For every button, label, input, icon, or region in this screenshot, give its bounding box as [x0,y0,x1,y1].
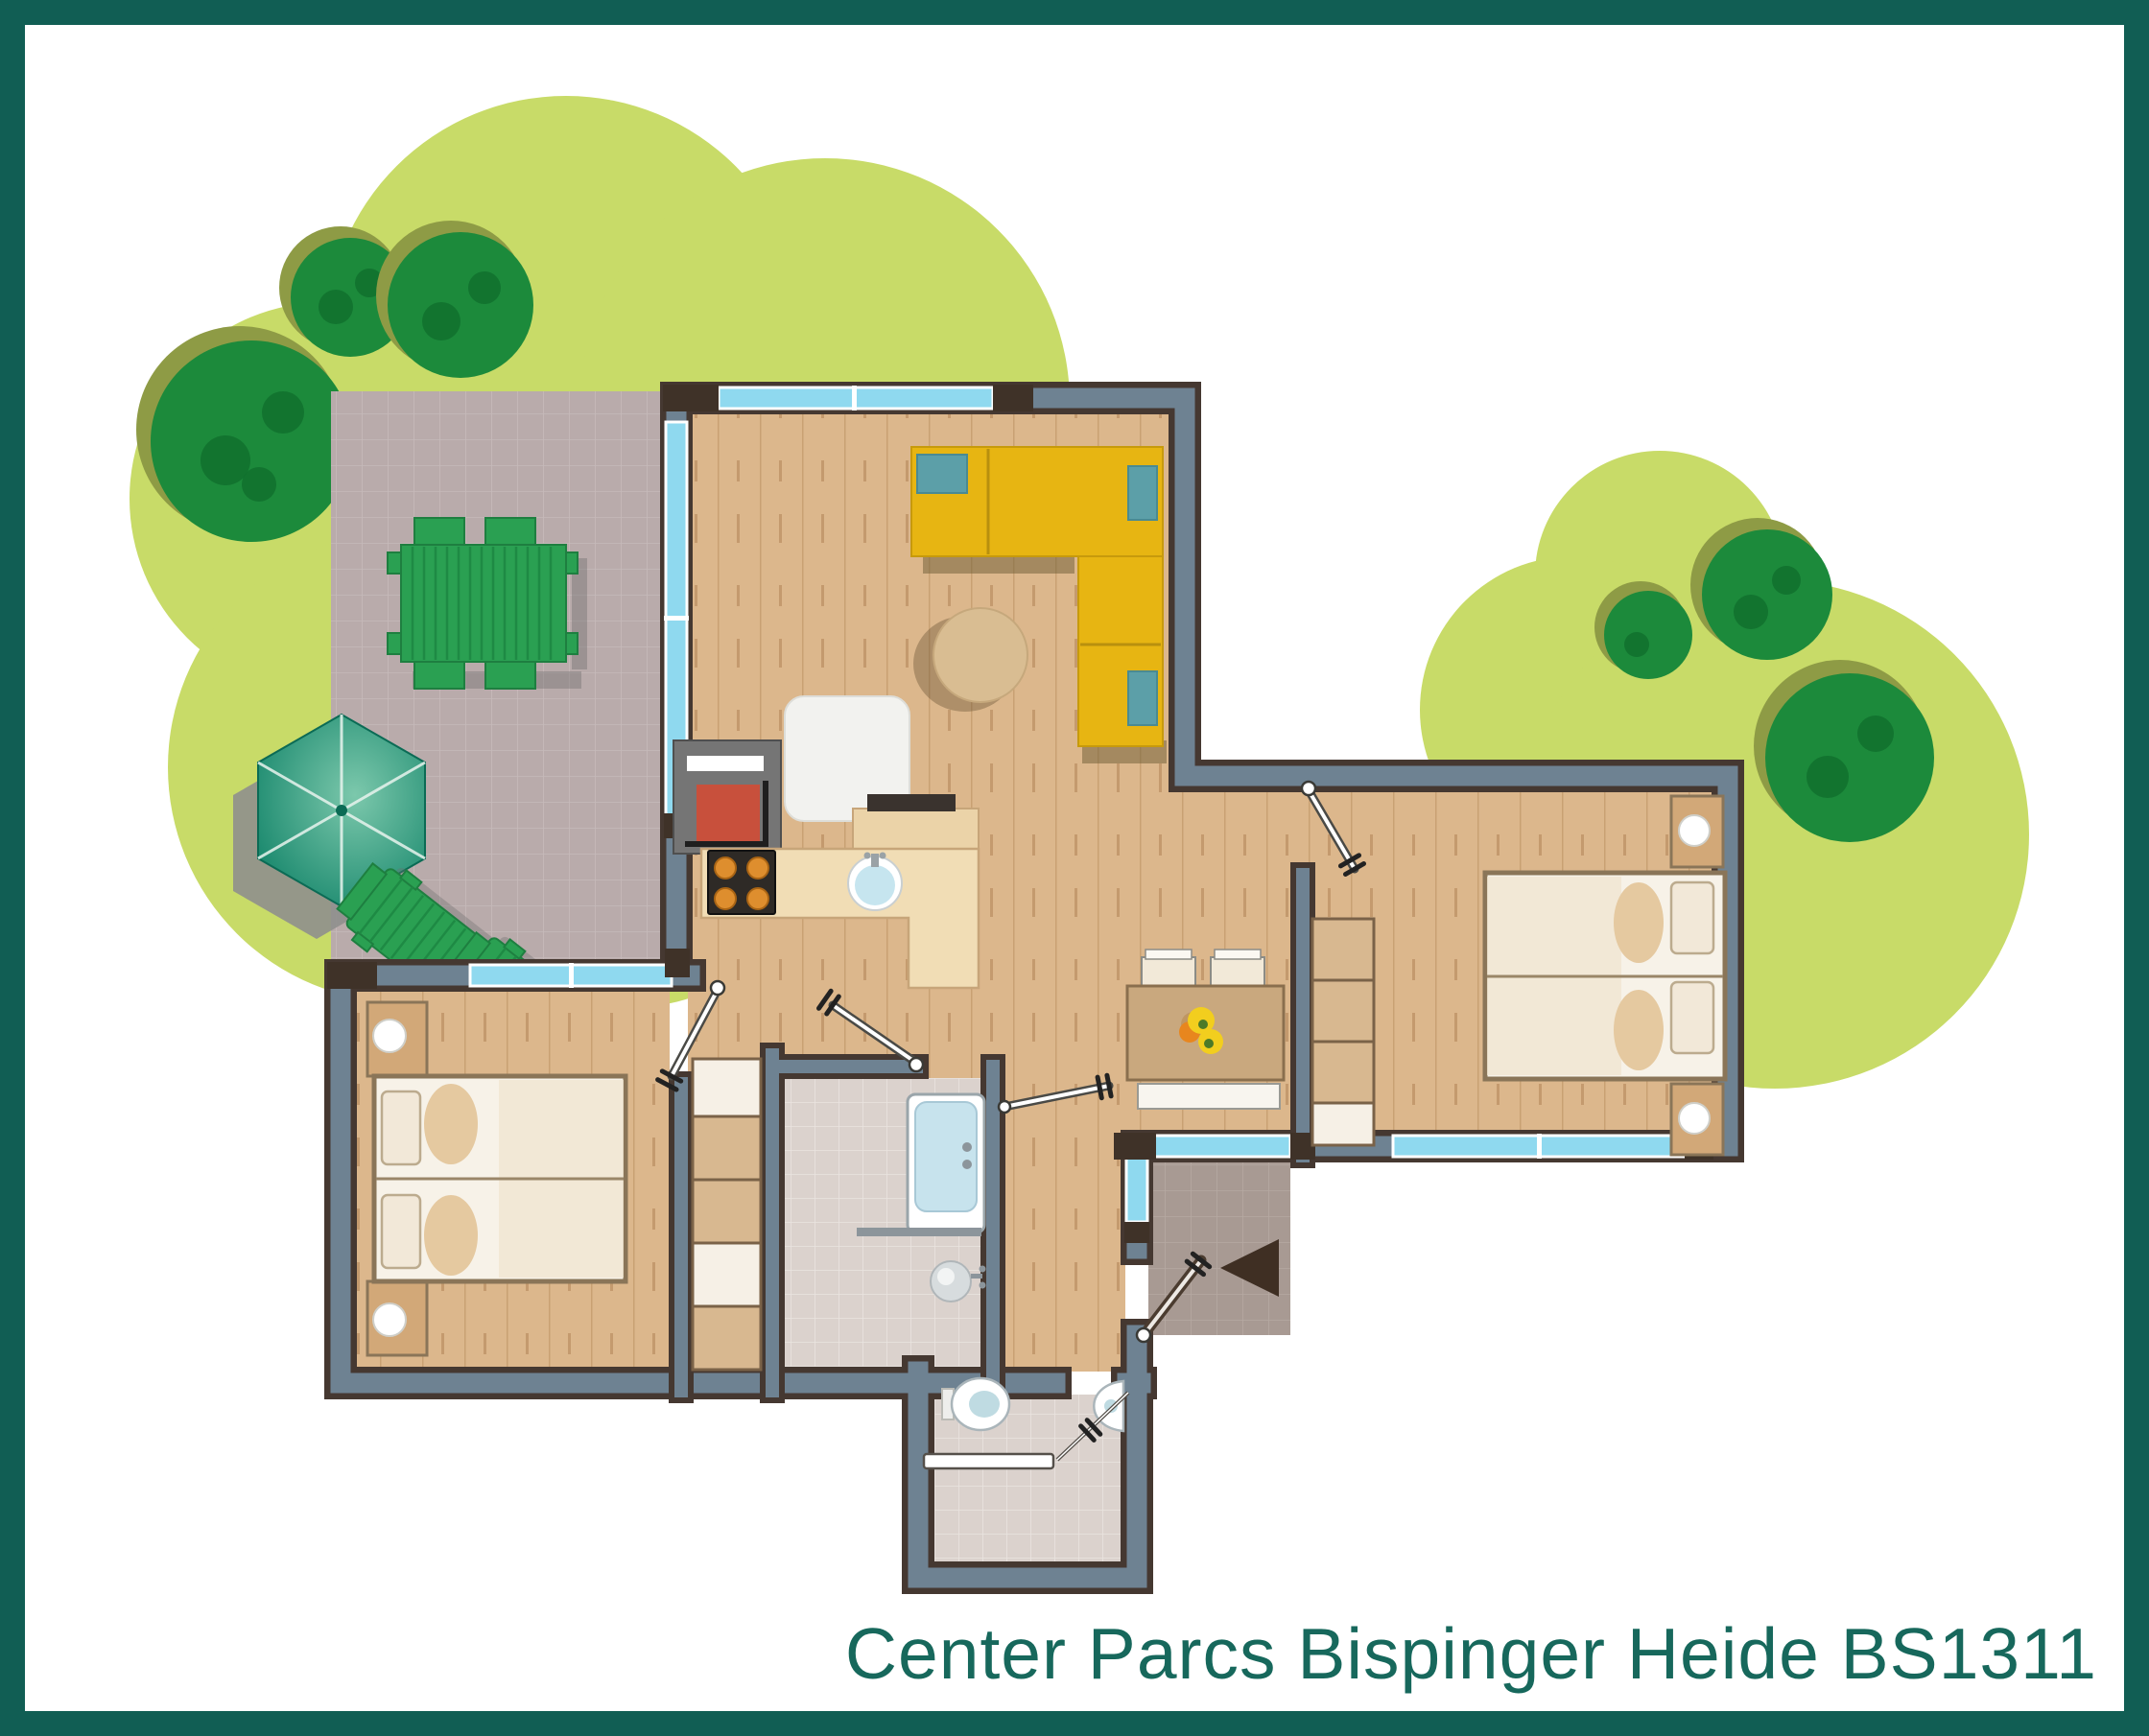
dining-chair [1211,957,1264,986]
lamp [1679,1103,1710,1134]
lamp [1679,815,1710,846]
window-porch [1126,1151,1147,1222]
sofa-cushion [1128,671,1157,725]
pillow [382,1091,420,1164]
stove [708,851,775,914]
fireplace [673,740,781,854]
dining-chair [1142,957,1195,986]
dining-bench [1138,1084,1280,1109]
floorplan-page: Center Parcs Bispinger Heide BS1311 [0,0,2149,1736]
towel-rail [857,1228,981,1236]
sofa-cushion [1128,466,1157,520]
wardrobe-cabinet [1312,919,1374,1145]
bathtub [908,1094,984,1232]
lamp [373,1303,406,1336]
pillow [382,1195,420,1268]
page-title: Center Parcs Bispinger Heide BS1311 [845,1613,2097,1694]
sofa-cushion [917,455,967,493]
lamp [373,1020,406,1052]
hall-closet [693,1059,761,1370]
window-dining [1151,1136,1290,1157]
floorplan-image: Center Parcs Bispinger Heide BS1311 [0,0,2149,1736]
pillow [1671,882,1713,953]
coffee-machine [867,794,956,811]
pillow [1671,982,1713,1053]
